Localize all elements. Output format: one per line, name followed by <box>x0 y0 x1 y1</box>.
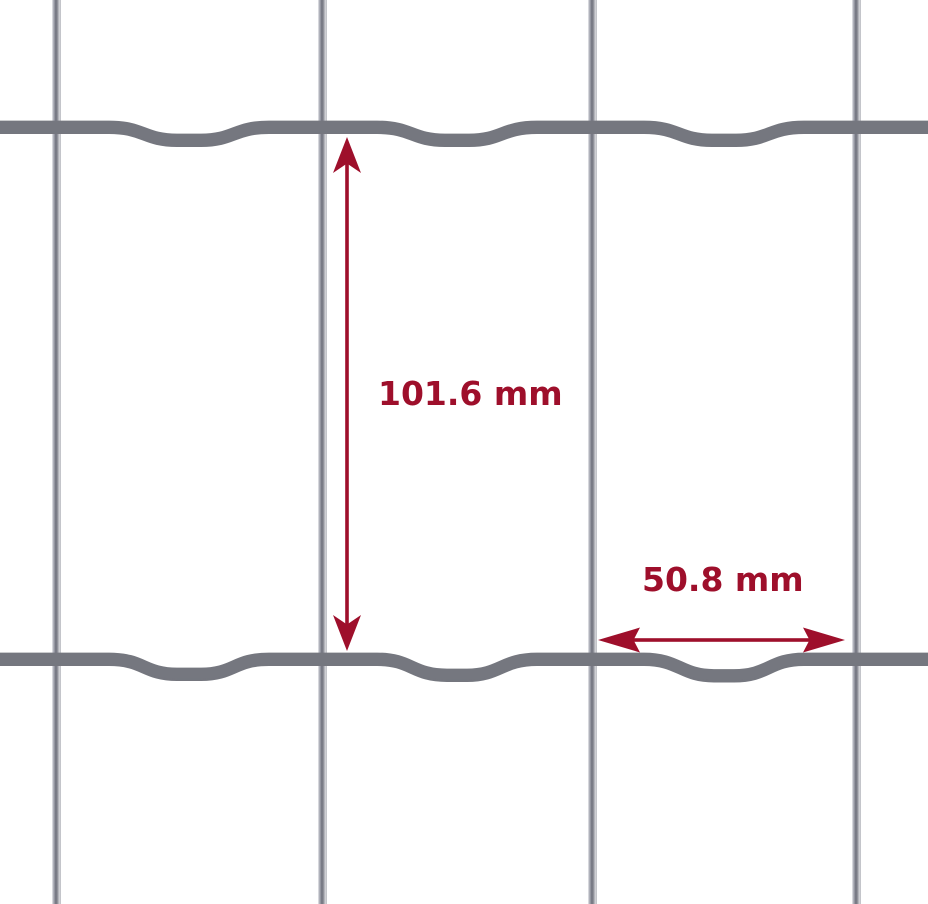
vertical-dimension-label: 101.6 mm <box>378 377 563 410</box>
vertical-wire <box>852 0 861 904</box>
horizontal-wire-bottom <box>0 658 928 677</box>
vertical-dimension-arrow <box>333 137 361 651</box>
mesh-graphic <box>0 0 928 904</box>
vertical-wire <box>588 0 597 904</box>
horizontal-dimension-arrow <box>598 628 845 653</box>
vertical-wire <box>52 0 61 904</box>
horizontal-dimension-label: 50.8 mm <box>642 563 804 596</box>
vertical-wire <box>318 0 327 904</box>
mesh-diagram: 101.6 mm 50.8 mm <box>0 0 928 904</box>
horizontal-wire-top <box>0 126 928 141</box>
